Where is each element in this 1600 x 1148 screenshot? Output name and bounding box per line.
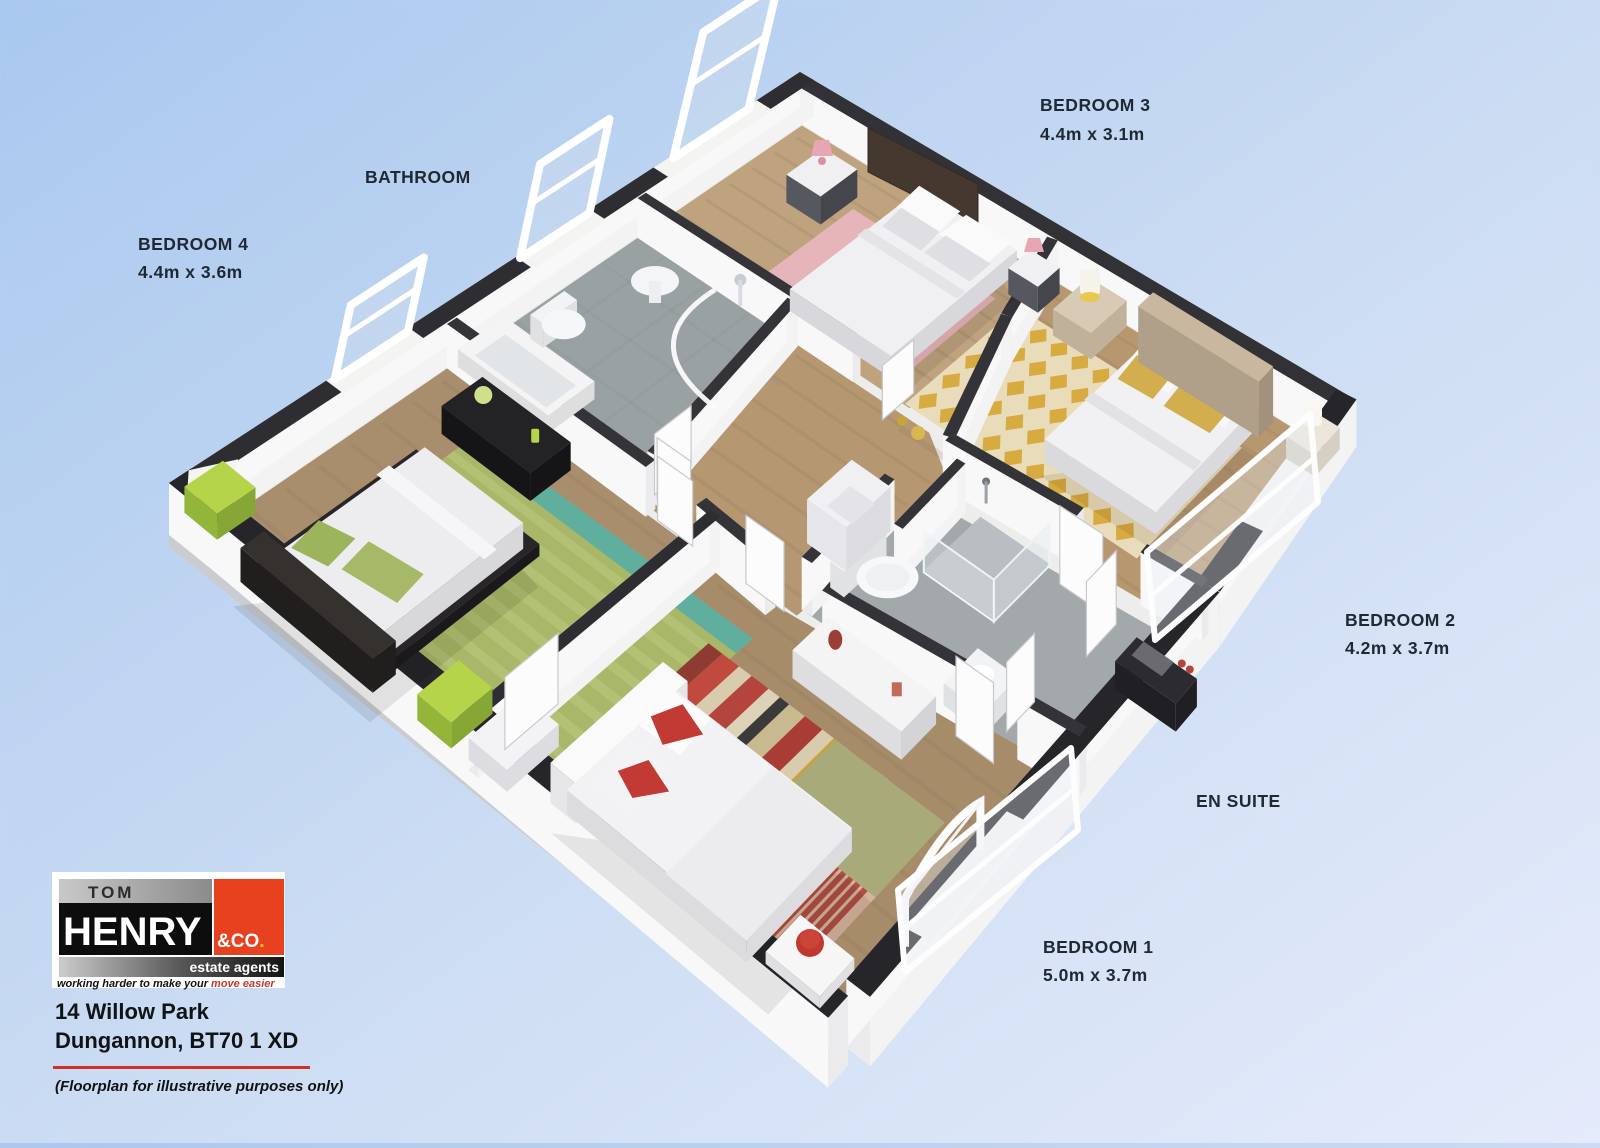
svg-text:4.4m x 3.6m: 4.4m x 3.6m — [138, 262, 243, 282]
svg-text:14 Willow Park: 14 Willow Park — [55, 999, 210, 1024]
svg-text:4.4m x 3.1m: 4.4m x 3.1m — [1040, 124, 1145, 144]
svg-text:estate agents: estate agents — [190, 959, 280, 975]
svg-text:BEDROOM 4: BEDROOM 4 — [138, 234, 248, 254]
svg-text:&CO.: &CO. — [217, 931, 265, 952]
svg-text:Dungannon, BT70 1 XD: Dungannon, BT70 1 XD — [55, 1028, 298, 1053]
svg-text:TOM: TOM — [88, 883, 134, 902]
svg-text:BEDROOM 2: BEDROOM 2 — [1345, 610, 1455, 630]
svg-text:BEDROOM 1: BEDROOM 1 — [1043, 937, 1153, 957]
svg-text:BEDROOM 3: BEDROOM 3 — [1040, 95, 1150, 115]
svg-text:EN SUITE: EN SUITE — [1196, 791, 1281, 811]
svg-text:(Floorplan for illustrative pu: (Floorplan for illustrative purposes onl… — [55, 1078, 343, 1095]
svg-text:5.0m x 3.7m: 5.0m x 3.7m — [1043, 965, 1148, 985]
svg-text:4.2m x 3.7m: 4.2m x 3.7m — [1345, 638, 1450, 658]
svg-text:working harder to make your mo: working harder to make your move easier — [57, 978, 275, 990]
svg-text:BATHROOM: BATHROOM — [365, 167, 471, 187]
svg-text:HENRY: HENRY — [63, 910, 202, 954]
